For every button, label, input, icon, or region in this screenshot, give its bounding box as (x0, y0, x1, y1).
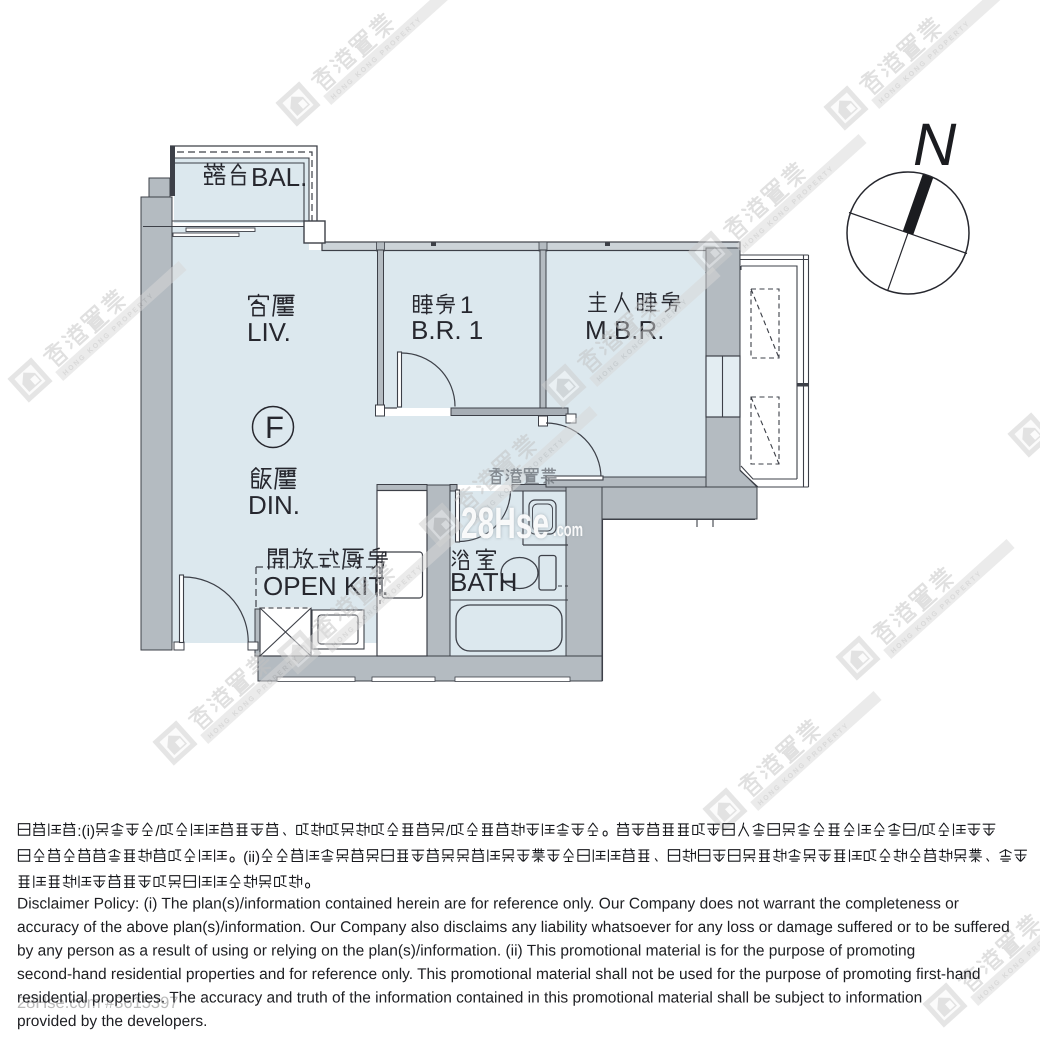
svg-text:N: N (913, 111, 957, 178)
svg-text:.com: .com (553, 520, 583, 541)
svg-text:BAL.: BAL. (251, 162, 307, 192)
svg-text:B.R. 1: B.R. 1 (411, 315, 483, 345)
svg-text:Disclaimer Policy: (i) The pla: Disclaimer Policy: (i) The plan(s)/infor… (17, 896, 959, 913)
svg-text:/: / (155, 823, 160, 840)
svg-text:by any person as a result of u: by any person as a result of using or re… (17, 943, 915, 960)
svg-text:accuracy of the above plan(s)/: accuracy of the above plan(s)/informatio… (17, 919, 1010, 936)
svg-text:residential properties. The ac: residential properties. The accuracy and… (17, 990, 922, 1007)
svg-text:BATH: BATH (450, 567, 517, 597)
svg-text:/: / (917, 823, 922, 840)
svg-text::(i): :(i) (77, 823, 95, 840)
svg-text:F: F (265, 410, 284, 445)
svg-text:(ii): (ii) (243, 849, 260, 866)
svg-text:28Hse: 28Hse (461, 499, 549, 548)
svg-text:LIV.: LIV. (247, 317, 291, 347)
svg-text:provided by the developers.: provided by the developers. (17, 1013, 207, 1030)
svg-text:second-hand residential proper: second-hand residential properties and f… (17, 966, 981, 983)
svg-text:DIN.: DIN. (248, 490, 300, 520)
